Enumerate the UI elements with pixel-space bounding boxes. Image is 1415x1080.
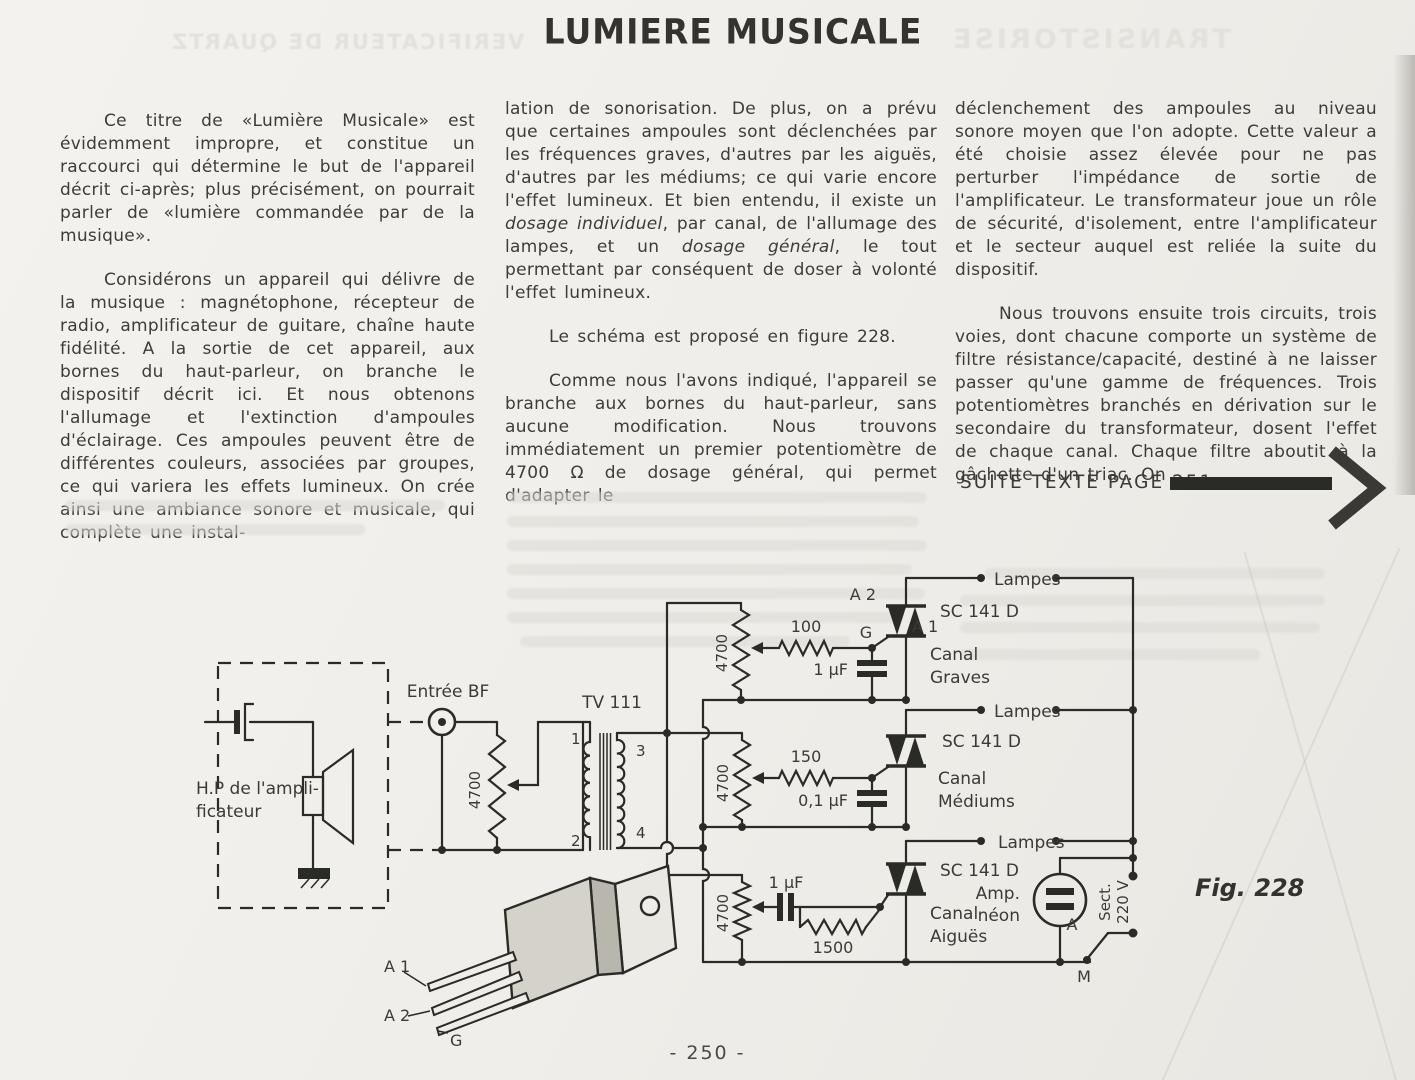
- neon-label-1: Amp.: [976, 884, 1020, 904]
- transformer-name: TV 111: [581, 693, 642, 713]
- package-lead-a2: A 2: [384, 1006, 410, 1025]
- ch3-cap-value: 1 µF: [769, 873, 804, 892]
- input-pot-value: 4700: [466, 771, 484, 809]
- page-number: - 250 -: [0, 1042, 1415, 1064]
- ground-symbol: [298, 868, 330, 888]
- ch3-resistor-value: 1500: [813, 938, 854, 957]
- ch1-canal-label-1: Canal: [930, 645, 978, 665]
- ch3-canal-label-1: Canal: [930, 904, 978, 924]
- ch2-cap-value: 0,1 µF: [798, 791, 848, 810]
- magazine-page: VERIFICATEUR DE QUARTZ TRANSISTORISE LUM…: [0, 0, 1415, 1080]
- continuation-arrow: [1170, 451, 1377, 525]
- ch3-lamps-label: Lampes: [998, 833, 1065, 853]
- package-lead-a1: A 1: [384, 957, 410, 976]
- ch3-triac-label: SC 141 D: [940, 861, 1019, 881]
- transformer-pin-1: 1: [571, 730, 581, 748]
- ch1-lamps-label: Lampes: [994, 570, 1061, 590]
- ch1-triac-label: SC 141 D: [940, 602, 1019, 622]
- switch-position-a: A: [1067, 915, 1078, 934]
- neon-label-2: néon: [978, 906, 1020, 926]
- transformer-pin-2: 2: [571, 832, 581, 850]
- speaker-label-line2: ficateur: [196, 802, 261, 822]
- ch1-a2-label: A 2: [850, 585, 876, 604]
- ch3-pot-value: 4700: [714, 894, 732, 932]
- ch2-triac-label: SC 141 D: [942, 732, 1021, 752]
- bf-input-label: Entrée BF: [407, 682, 490, 702]
- transformer-pin-4: 4: [636, 824, 646, 842]
- page-edge-shadow: [1393, 55, 1415, 495]
- transformer-pin-3: 3: [636, 742, 646, 760]
- ch1-canal-label-2: Graves: [930, 668, 990, 688]
- ch2-resistor-value: 150: [791, 747, 822, 766]
- speaker-label-line1: H.P de l'ampli-: [196, 779, 319, 799]
- ch1-a1-label: A 1: [912, 617, 938, 636]
- triac-package-drawing: [404, 866, 676, 1035]
- ch2-canal-label-1: Canal: [938, 769, 986, 789]
- channel-mediums: [734, 706, 1133, 831]
- ch2-pot-value: 4700: [714, 764, 732, 802]
- ch1-pot-value: 4700: [713, 634, 731, 672]
- mains-label-1: Sect.: [1096, 883, 1114, 921]
- mains-label-2: 220 V: [1114, 879, 1132, 923]
- switch-position-m: M: [1077, 967, 1091, 986]
- ch1-cap-value: 1 µF: [813, 660, 848, 679]
- transformer: [583, 722, 624, 850]
- ch1-resistor-value: 100: [791, 617, 822, 636]
- ch3-canal-label-2: Aiguës: [930, 927, 987, 947]
- ch1-gate-label: G: [860, 623, 872, 642]
- bf-input-jack: [429, 709, 583, 854]
- ch2-lamps-label: Lampes: [994, 702, 1061, 722]
- figure-228-schematic: H.P de l'ampli- ficateur Entrée BF 4700: [0, 0, 1415, 1080]
- ch2-canal-label-2: Médiums: [938, 792, 1015, 812]
